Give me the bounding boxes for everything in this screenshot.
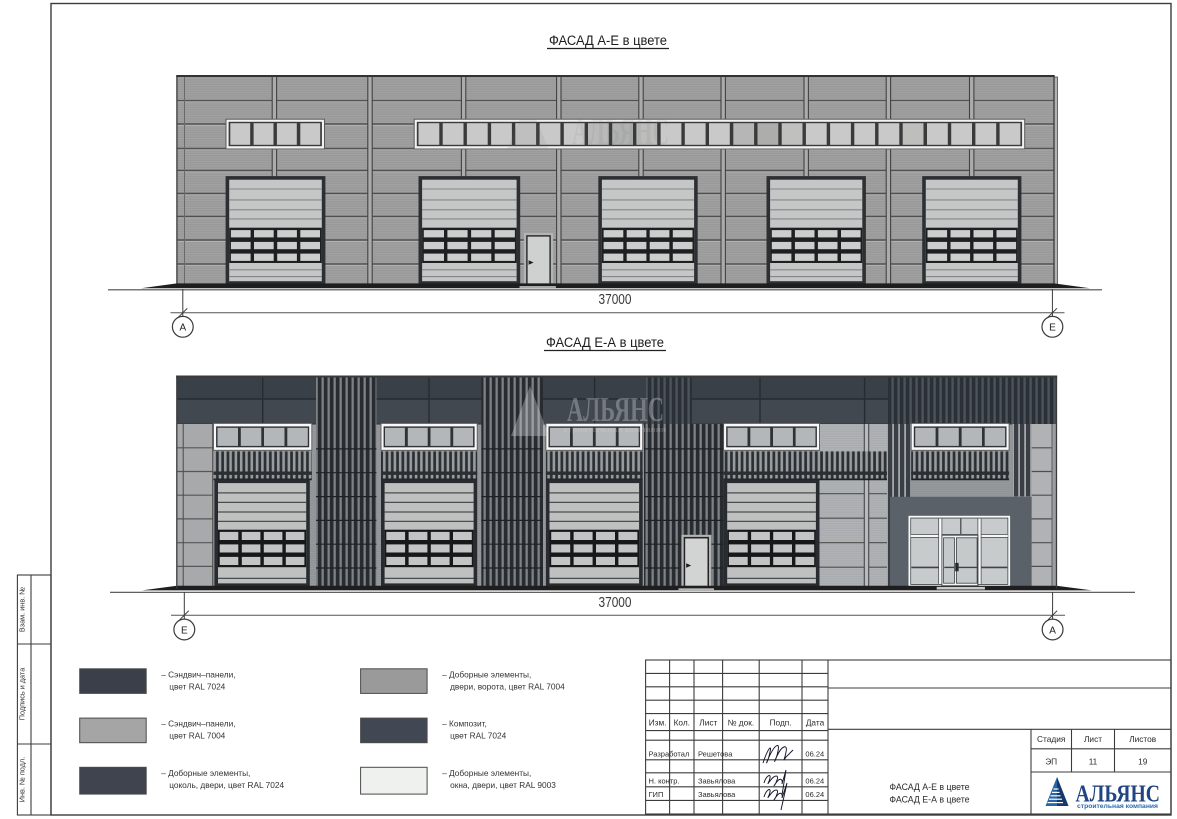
svg-text:19: 19 [1138,757,1148,767]
svg-text:Листов: Листов [1129,734,1157,744]
svg-text:ФАСАД Е-А в цвете: ФАСАД Е-А в цвете [546,335,664,350]
svg-text:строительная компания: строительная компания [563,427,666,434]
svg-text:– Доборные элементы,: – Доборные элементы, [442,669,531,679]
svg-text:Стадия: Стадия [1037,734,1065,744]
svg-text:– Доборные элементы,: – Доборные элементы, [442,768,531,778]
svg-text:– Доборные элементы,: – Доборные элементы, [161,768,250,778]
svg-text:ГИП: ГИП [649,790,664,799]
svg-text:Завьялова: Завьялова [698,777,736,786]
svg-text:06.24: 06.24 [805,750,824,759]
svg-text:– Сэндвич–панели,: – Сэндвич–панели, [161,669,235,679]
svg-text:Разработал: Разработал [649,750,690,759]
svg-text:А: А [1049,625,1056,636]
svg-text:ФАСАД А-Е в цвете: ФАСАД А-Е в цвете [549,33,667,48]
svg-text:Лист: Лист [699,718,717,728]
svg-text:– Композит,: – Композит, [442,719,487,729]
svg-text:06.24: 06.24 [805,777,824,786]
svg-text:11: 11 [1089,757,1098,767]
svg-text:Н. контр.: Н. контр. [649,777,680,786]
svg-text:Завьялова: Завьялова [698,790,736,799]
svg-text:Изм.: Изм. [649,718,667,728]
svg-text:Подпись и дата: Подпись и дата [18,667,27,720]
svg-text:ФАСАД Е-А в цвете: ФАСАД Е-А в цвете [889,795,969,805]
svg-text:Е: Е [181,625,188,636]
svg-text:37000: 37000 [599,292,632,308]
svg-text:Лист: Лист [1084,734,1102,744]
svg-text:Инв. № подл.: Инв. № подл. [18,757,27,802]
svg-text:двери, ворота, цвет RAL 7004: двери, ворота, цвет RAL 7004 [450,681,565,691]
svg-text:цвет RAL 7024: цвет RAL 7024 [169,681,225,691]
svg-text:ФАСАД А-Е в цвете: ФАСАД А-Е в цвете [889,782,969,792]
svg-text:Подп.: Подп. [770,718,792,728]
svg-text:06.24: 06.24 [805,790,824,799]
svg-text:Взам. инв. №: Взам. инв. № [18,587,27,632]
svg-text:Е: Е [1049,323,1056,334]
svg-text:ЭП: ЭП [1045,757,1057,767]
svg-text:окна, двери, цвет RAL 9003: окна, двери, цвет RAL 9003 [450,780,556,790]
svg-text:цоколь, двери, цвет RAL 7024: цоколь, двери, цвет RAL 7024 [169,780,284,790]
svg-text:37000: 37000 [599,595,632,611]
svg-text:А: А [179,323,186,334]
svg-text:№ док.: № док. [728,718,755,728]
svg-text:АЛЬЯНС: АЛЬЯНС [567,390,664,429]
svg-text:Дата: Дата [806,718,825,728]
svg-text:– Сэндвич–панели,: – Сэндвич–панели, [161,719,235,729]
svg-text:Кол.: Кол. [674,718,690,728]
svg-text:цвет RAL 7004: цвет RAL 7004 [169,731,225,741]
svg-text:цвет RAL 7024: цвет RAL 7024 [450,731,506,741]
svg-text:Решетова: Решетова [698,750,733,759]
svg-text:строительная компания: строительная компания [1077,803,1158,810]
